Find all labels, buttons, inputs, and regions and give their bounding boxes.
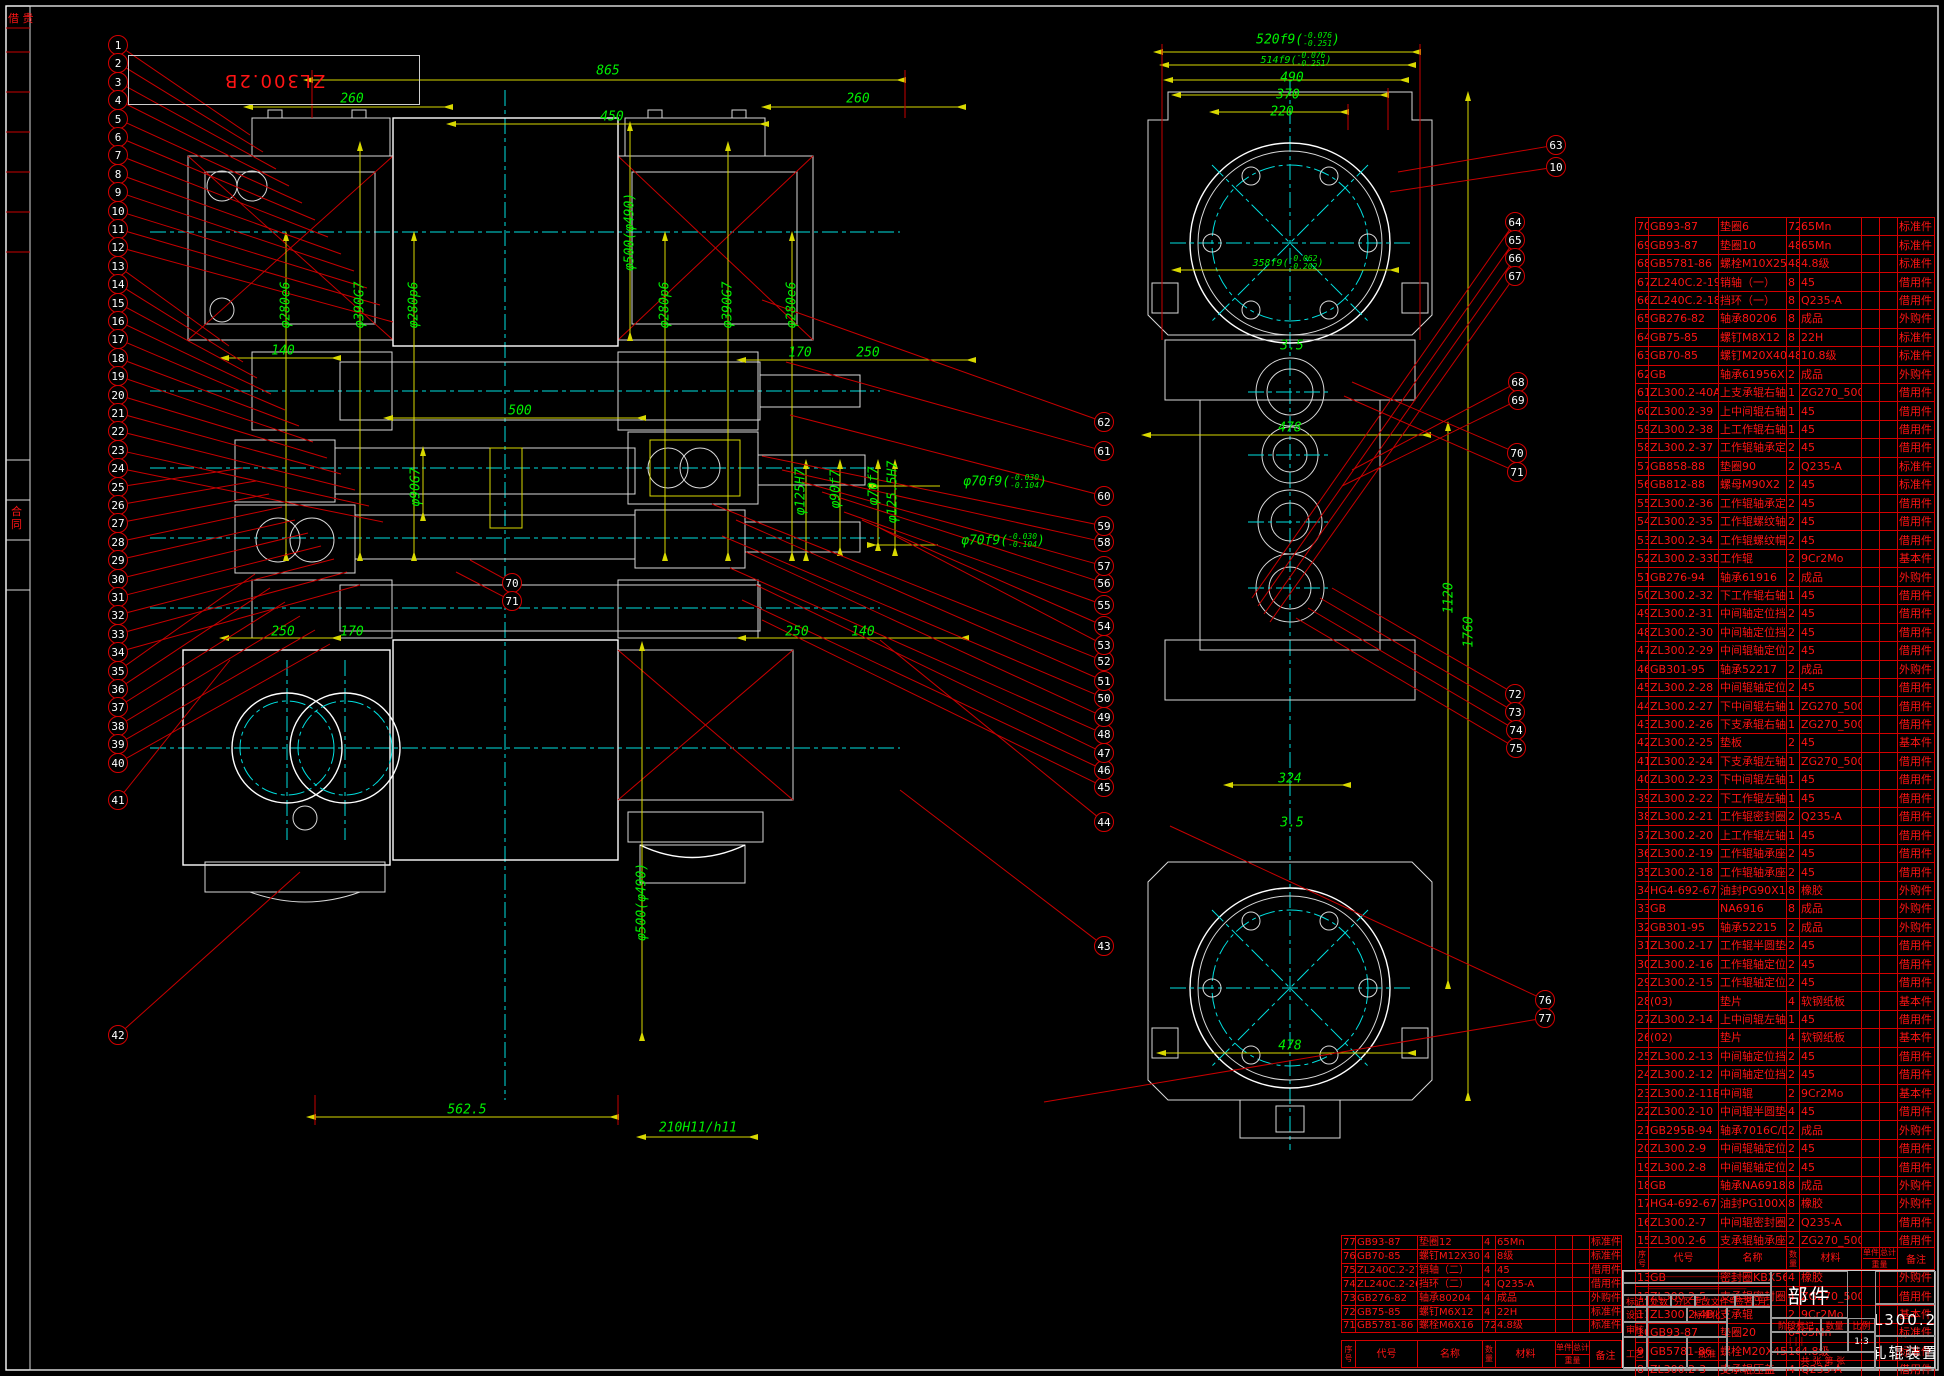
balloon-9[interactable]: 9 (108, 182, 128, 202)
bom-cell (1862, 771, 1880, 788)
bom-cell (1862, 384, 1880, 401)
bom-cell: 标准件 (1590, 1320, 1621, 1332)
balloon-36[interactable]: 36 (108, 679, 128, 699)
side-view[interactable] (1148, 80, 1432, 1150)
tb-scale-value: 1:3 (1848, 1332, 1875, 1352)
dimension-label-10[interactable]: φ280e6 (785, 282, 800, 329)
bom-cell (1862, 716, 1880, 733)
bom-cell: GB75-85 (1649, 329, 1719, 346)
bom-cell: 轴承NA6918 (1719, 1177, 1787, 1194)
balloon-50[interactable]: 50 (1094, 688, 1114, 708)
bom-cell: 69 (1636, 236, 1649, 253)
balloon-61[interactable]: 61 (1094, 441, 1114, 461)
bom-row-56: 56GB812-88螺母M90X2245标准件 (1636, 475, 1934, 493)
dimension-label-39[interactable]: 324 (1278, 772, 1301, 787)
bom-cell (1880, 366, 1898, 383)
bom-cell: 72 (1342, 1306, 1356, 1319)
bom-cell: 外购件 (1898, 1177, 1934, 1194)
bom-cell (1880, 255, 1898, 272)
bom-cell: 工作辊螺纹轴套 (1719, 513, 1787, 530)
balloon-38[interactable]: 38 (108, 716, 128, 736)
balloon-15[interactable]: 15 (108, 293, 128, 313)
bom-row-75: 75ZL240C.2-27销轴（二）445借用件 (1342, 1263, 1621, 1277)
balloon-48[interactable]: 48 (1094, 724, 1114, 744)
bom-cell: GB295B-94 (1649, 1121, 1719, 1138)
bom-cell: HG4-692-67 (1649, 1195, 1719, 1212)
dimension-label-12[interactable]: 170 (788, 346, 811, 361)
bom-cell: 中间轴定位挡板(二) (1719, 624, 1787, 641)
bom-cell (1880, 1177, 1898, 1194)
bom-cell: 轴承61956X1M/2 (1719, 366, 1787, 383)
bom-cell: 下工作辊左轴承座 (1719, 790, 1787, 807)
bom-cell: 8 (1787, 900, 1800, 917)
bom-row-58: 58ZL300.2-37工作辊轴承定位挡板(二)245借用件 (1636, 438, 1934, 456)
dimension-label-24[interactable]: 250 (785, 625, 808, 640)
dimension-label-30[interactable]: 514f9(-0.076-0.251) (1260, 52, 1331, 68)
dimension-label-19[interactable]: φ125.5H7 (886, 461, 901, 524)
bom-cell: 软钢纸板 (1800, 992, 1862, 1009)
balloon-41[interactable]: 41 (108, 790, 128, 810)
bom-cell: ZL300.2-34 (1649, 531, 1719, 548)
bom-cell: ZL240C.2-19 (1649, 273, 1719, 290)
bom-table-small[interactable]: 77GB93-87垫圈12465Mn标准件76GB70-85螺钉M12X3048… (1341, 1235, 1622, 1333)
balloon-7[interactable]: 7 (108, 145, 128, 165)
balloon-32[interactable]: 32 (108, 605, 128, 625)
bom-cell: 2 (1787, 1121, 1800, 1138)
bom-cell: 销轴（二） (1418, 1264, 1483, 1277)
dimension-label-4[interactable]: φ280e6 (279, 282, 294, 329)
bom-cell: 65Mn (1496, 1236, 1556, 1249)
dimension-label-22[interactable]: 250 (271, 625, 294, 640)
bom-cell: 成品 (1800, 661, 1862, 678)
bom-cell: 借用件 (1898, 384, 1934, 401)
dimension-label-20[interactable]: φ70f9(-0.030-0.104) (963, 474, 1047, 490)
bom-cell: 55 (1636, 495, 1649, 512)
bom-cell: 借用件 (1898, 1011, 1934, 1028)
balloon-66[interactable]: 66 (1505, 248, 1525, 268)
dimension-lines (228, 44, 1468, 1137)
balloon-26[interactable]: 26 (108, 495, 128, 515)
dimension-label-16[interactable]: φ125H7 (794, 469, 809, 516)
balloon-77[interactable]: 77 (1535, 1008, 1555, 1028)
bom-cell: ZL300.2-25 (1649, 734, 1719, 751)
bom-cell: 2 (1787, 366, 1800, 383)
balloon-40[interactable]: 40 (108, 753, 128, 773)
bom-cell (1862, 550, 1880, 567)
balloon-12[interactable]: 12 (108, 237, 128, 257)
tb-check-label: 审核 (1623, 1322, 1647, 1337)
bom-cell: 外购件 (1898, 568, 1934, 585)
dimension-label-41[interactable]: 478 (1278, 1039, 1301, 1054)
bom-cell: 借用件 (1898, 937, 1934, 954)
bom-cell: 45 (1800, 1066, 1862, 1083)
bom-cell (1880, 476, 1898, 493)
bom-cell (1880, 513, 1898, 530)
bom-cell (1880, 1011, 1898, 1028)
bom-cell: 借用件 (1898, 826, 1934, 843)
bom-cell: 借用件 (1898, 863, 1934, 880)
bom-cell: 下中间辊左轴承座 (1719, 771, 1787, 788)
bom-cell: 上中间辊右轴承座 (1719, 402, 1787, 419)
bom-cell (1880, 1066, 1898, 1083)
bom-cell: 2 (1787, 974, 1800, 991)
bom-cell: 2 (1787, 661, 1800, 678)
bom-cell: Q235-A (1800, 458, 1862, 475)
bom-cell: 45 (1496, 1264, 1556, 1277)
balloon-34[interactable]: 34 (108, 642, 128, 662)
bom-cell: 54 (1636, 513, 1649, 530)
bom-cell (1880, 292, 1898, 309)
bom-cell: 2 (1787, 1140, 1800, 1157)
bom-cell (1880, 1214, 1898, 1231)
balloon-20[interactable]: 20 (108, 385, 128, 405)
bom-row-39: 39ZL300.2-22下工作辊左轴承座145借用件 (1636, 789, 1934, 807)
dimension-label-25[interactable]: 140 (851, 625, 874, 640)
bom-cell: 45 (1800, 476, 1862, 493)
bom-row-16: 16ZL300.2-7中间辊密封圈压盖2Q235-A借用件 (1636, 1213, 1934, 1231)
dimension-label-29[interactable]: 520f9(-0.076-0.251) (1256, 32, 1340, 48)
balloon-37[interactable]: 37 (108, 697, 128, 717)
bom-cell (1862, 1214, 1880, 1231)
bom-cell: ZL300.2-15 (1649, 974, 1719, 991)
balloon-21[interactable]: 21 (108, 403, 128, 423)
balloon-42[interactable]: 42 (108, 1025, 128, 1045)
bom-cell: 22 (1636, 1103, 1649, 1120)
dimension-label-28[interactable]: 210H11/h11 (659, 1121, 737, 1136)
bom-cell: 借用件 (1898, 495, 1934, 512)
dimension-label-3[interactable]: 260 (846, 92, 869, 107)
bom-row-26: 26(02)垫片4软钢纸板基本件 (1636, 1028, 1934, 1046)
bom-cell: 45 (1800, 845, 1862, 862)
bom-cell (1556, 1264, 1573, 1277)
balloon-4[interactable]: 4 (108, 90, 128, 110)
bom-cell (1862, 402, 1880, 419)
balloon-31[interactable]: 31 (108, 587, 128, 607)
bom-header-序号: 序号 (1636, 1248, 1649, 1269)
dimension-label-6[interactable]: φ280p6 (407, 282, 422, 329)
balloon-16[interactable]: 16 (108, 311, 128, 331)
dimension-label-18[interactable]: φ70f7 (867, 466, 882, 505)
bom-cell: 65Mn (1800, 218, 1862, 235)
bom-row-36: 36ZL300.2-19工作辊轴承座外环245借用件 (1636, 844, 1934, 862)
balloon-71[interactable]: 71 (1507, 462, 1527, 482)
balloon-53[interactable]: 53 (1094, 635, 1114, 655)
balloon-69[interactable]: 69 (1508, 390, 1528, 410)
bom-cell: GB301-95 (1649, 919, 1719, 936)
balloon-68[interactable]: 68 (1508, 372, 1528, 392)
bom-cell: GB93-87 (1649, 218, 1719, 235)
balloon-17[interactable]: 17 (108, 329, 128, 349)
bom-cell (1880, 679, 1898, 696)
balloon-18[interactable]: 18 (108, 348, 128, 368)
bom-cell: 74 (1342, 1278, 1356, 1291)
balloon-10[interactable]: 10 (1546, 157, 1566, 177)
bom-cell: 螺栓M10X25 (1719, 255, 1787, 272)
balloon-13[interactable]: 13 (108, 256, 128, 276)
bom-cell: 借用件 (1898, 292, 1934, 309)
dimension-label-37[interactable]: 1120 (1442, 582, 1457, 613)
dimension-label-32[interactable]: 370 (1276, 88, 1299, 103)
bom-cell (1862, 366, 1880, 383)
bom-header-代号: 代号 (1649, 1248, 1719, 1269)
bom-cell: 借用件 (1898, 790, 1934, 807)
dimension-label-13[interactable]: 250 (856, 346, 879, 361)
bom-cell (1880, 587, 1898, 604)
bom-cell: 2 (1787, 1048, 1800, 1065)
tb-qty-value (1821, 1332, 1848, 1352)
bom-header-weight: 单件总计重量 (1556, 1341, 1590, 1367)
bom-cell: 标准件 (1898, 255, 1934, 272)
bom-cell: 借用件 (1898, 1140, 1934, 1157)
bom-cell: 外购件 (1898, 1195, 1934, 1212)
bom-cell: 借用件 (1898, 716, 1934, 733)
bom-cell (1862, 1085, 1880, 1102)
bom-row-50: 50ZL300.2-32下工作辊右轴承座145借用件 (1636, 586, 1934, 604)
bom-cell: 轴承52217 (1719, 661, 1787, 678)
balloon-74[interactable]: 74 (1506, 720, 1526, 740)
balloon-19[interactable]: 19 (108, 366, 128, 386)
balloon-70[interactable]: 70 (502, 573, 522, 593)
bom-cell: 34 (1636, 882, 1649, 899)
bom-header-数量: 数量 (1787, 1248, 1800, 1269)
balloon-5[interactable]: 5 (108, 109, 128, 129)
bom-cell: 垫圈10 (1719, 236, 1787, 253)
bom-cell: ZL300.2-24 (1649, 753, 1719, 770)
bom-row-67: 67ZL240C.2-19销轴（一）845借用件 (1636, 272, 1934, 290)
balloon-33[interactable]: 33 (108, 624, 128, 644)
balloon-49[interactable]: 49 (1094, 707, 1114, 727)
dimension-label-38[interactable]: 1760 (1462, 616, 1477, 647)
balloon-6[interactable]: 6 (108, 127, 128, 147)
bom-cell (1880, 402, 1898, 419)
bom-cell: 成品 (1496, 1292, 1556, 1305)
balloon-71[interactable]: 71 (502, 591, 522, 611)
bom-cell (1862, 1048, 1880, 1065)
bom-cell: 8 (1787, 882, 1800, 899)
bom-cell: ZL300.2-19 (1649, 845, 1719, 862)
balloon-46[interactable]: 46 (1094, 760, 1114, 780)
dimension-label-23[interactable]: 170 (340, 625, 363, 640)
bom-cell: 18 (1636, 1177, 1649, 1194)
dimension-label-35[interactable]: 3.5 (1280, 339, 1303, 354)
bom-table-main[interactable]: 70GB93-87垫圈67265Mn标准件69GB93-87垫圈104865Mn… (1635, 217, 1935, 1376)
bom-cell (1862, 347, 1880, 364)
bom-cell (1862, 568, 1880, 585)
bom-cell: ZL300.2-14 (1649, 1011, 1719, 1028)
bom-cell: ZL240C.2-27 (1356, 1264, 1418, 1277)
dimension-label-1[interactable]: 260 (340, 92, 363, 107)
bom-cell: 45 (1800, 439, 1862, 456)
bom-cell: ZL300.2-21 (1649, 808, 1719, 825)
bom-cell: 1 (1787, 771, 1800, 788)
bom-cell: 工作辊 (1719, 550, 1787, 567)
balloon-57[interactable]: 57 (1094, 556, 1114, 576)
bom-cell: 成品 (1800, 568, 1862, 585)
bom-cell: 45 (1800, 605, 1862, 622)
dimension-label-11[interactable]: 140 (271, 344, 294, 359)
bom-row-18: 18GB轴承NA69188成品外购件 (1636, 1176, 1934, 1194)
bom-cell (1880, 697, 1898, 714)
balloon-11[interactable]: 11 (108, 219, 128, 239)
balloon-39[interactable]: 39 (108, 734, 128, 754)
dimension-label-36[interactable]: 478 (1278, 421, 1301, 436)
bom-cell: 64 (1636, 329, 1649, 346)
bom-cell: 39 (1636, 790, 1649, 807)
bom-cell: ZL240C.2-18 (1649, 292, 1719, 309)
bom-cell: 借用件 (1898, 402, 1934, 419)
balloon-10[interactable]: 10 (108, 201, 128, 221)
bom-cell: ZG270_500 (1800, 753, 1862, 770)
bom-cell: GB (1649, 1177, 1719, 1194)
bom-cell (1862, 476, 1880, 493)
bom-cell: ZL300.2-39 (1649, 402, 1719, 419)
bom-cell: 借用件 (1590, 1278, 1621, 1291)
bom-cell: 45 (1800, 513, 1862, 530)
bom-cell: 59 (1636, 421, 1649, 438)
balloon-44[interactable]: 44 (1094, 812, 1114, 832)
balloon-47[interactable]: 47 (1094, 743, 1114, 763)
tb-qty-label: 数量 (1821, 1318, 1848, 1332)
dimension-label-40[interactable]: 3.5 (1280, 816, 1303, 831)
balloon-67[interactable]: 67 (1505, 266, 1525, 286)
balloon-28[interactable]: 28 (108, 532, 128, 552)
bom-cell: GB301-95 (1649, 661, 1719, 678)
bom-table-main-header: 序号代号名称数量材料单件总计重量备注 (1635, 1247, 1935, 1270)
balloon-35[interactable]: 35 (108, 661, 128, 681)
bom-cell: 工作辊轴定位挡板(一) (1719, 974, 1787, 991)
balloon-29[interactable]: 29 (108, 550, 128, 570)
bom-cell (1880, 568, 1898, 585)
bom-cell: 42 (1636, 734, 1649, 751)
dimension-label-26[interactable]: φ500(φ490) (635, 863, 650, 941)
bom-cell: 借用件 (1898, 1103, 1934, 1120)
balloon-25[interactable]: 25 (108, 477, 128, 497)
dimension-label-2[interactable]: 450 (600, 110, 623, 125)
bom-cell: 基本件 (1898, 1085, 1934, 1102)
tb-changedoc-label: 更改文件号 (1695, 1295, 1735, 1307)
bom-header-备注: 备注 (1590, 1341, 1621, 1367)
dimension-label-34[interactable]: 358f9(-0.062-0.202) (1252, 255, 1323, 271)
balloon-30[interactable]: 30 (108, 569, 128, 589)
dimension-label-15[interactable]: φ90G7 (409, 467, 424, 506)
balloon-76[interactable]: 76 (1535, 990, 1555, 1010)
bom-cell: 上工作辊右轴承座 (1719, 421, 1787, 438)
dimension-label-31[interactable]: 490 (1280, 71, 1303, 86)
balloon-43[interactable]: 43 (1094, 936, 1114, 956)
bom-cell: GB70-85 (1649, 347, 1719, 364)
balloon-64[interactable]: 64 (1505, 212, 1525, 232)
bom-cell: ZL300.2-35 (1649, 513, 1719, 530)
bom-cell: 22H (1496, 1306, 1556, 1319)
bom-cell (1862, 458, 1880, 475)
bom-cell: 1 (1787, 826, 1800, 843)
balloon-63[interactable]: 63 (1546, 135, 1566, 155)
tb-craft-sign (1647, 1337, 1687, 1369)
bom-cell: 8 (1787, 310, 1800, 327)
balloon-75[interactable]: 75 (1506, 738, 1526, 758)
bom-cell: 1 (1787, 421, 1800, 438)
dimension-label-27[interactable]: 562.5 (447, 1103, 486, 1118)
bom-cell (1573, 1320, 1590, 1332)
balloon-62[interactable]: 62 (1094, 412, 1114, 432)
dimension-label-8[interactable]: φ280p6 (658, 282, 673, 329)
bom-cell: 46 (1636, 661, 1649, 678)
bom-cell: 45 (1800, 1103, 1862, 1120)
bom-cell: 基本件 (1898, 550, 1934, 567)
bom-cell: 上中间辊左轴承座 (1719, 1011, 1787, 1028)
balloon-55[interactable]: 55 (1094, 595, 1114, 615)
balloon-54[interactable]: 54 (1094, 616, 1114, 636)
bom-row-60: 60ZL300.2-39上中间辊右轴承座145借用件 (1636, 401, 1934, 419)
bom-cell: 37 (1636, 826, 1649, 843)
bom-cell (1556, 1278, 1573, 1291)
dimension-label-17[interactable]: φ90f7 (829, 469, 844, 508)
bom-cell (1880, 845, 1898, 862)
dimension-label-21[interactable]: φ70f9(-0.030-0.104) (961, 533, 1045, 549)
balloon-24[interactable]: 24 (108, 458, 128, 478)
bom-cell: 工作辊轴承座内环 (1719, 863, 1787, 880)
balloon-27[interactable]: 27 (108, 513, 128, 533)
dimension-label-7[interactable]: φ500(φ490) (623, 193, 638, 271)
balloon-73[interactable]: 73 (1505, 702, 1525, 722)
bom-cell: 48 (1636, 624, 1649, 641)
bom-cell: 成品 (1800, 1177, 1862, 1194)
dimension-label-14[interactable]: 500 (508, 404, 531, 419)
bom-cell: 标准件 (1898, 347, 1934, 364)
bom-cell: 借用件 (1590, 1264, 1621, 1277)
bom-cell: 2 (1787, 439, 1800, 456)
dimension-label-33[interactable]: 220 (1270, 105, 1293, 120)
bom-cell: ZL300.2-29 (1649, 642, 1719, 659)
bom-cell: 下支承辊左轴承座 (1719, 753, 1787, 770)
balloon-14[interactable]: 14 (108, 274, 128, 294)
bom-cell (1862, 937, 1880, 954)
bom-cell: ZL300.2-28 (1649, 679, 1719, 696)
balloon-60[interactable]: 60 (1094, 486, 1114, 506)
dimension-label-9[interactable]: φ390G7 (721, 282, 736, 329)
bom-cell (1880, 734, 1898, 751)
balloon-51[interactable]: 51 (1094, 671, 1114, 691)
balloon-70[interactable]: 70 (1507, 443, 1527, 463)
dimension-label-0[interactable]: 865 (596, 64, 619, 79)
bom-row-32: 32GB301-95轴承522152成品外购件 (1636, 918, 1934, 936)
balloon-22[interactable]: 22 (108, 421, 128, 441)
balloon-65[interactable]: 65 (1505, 230, 1525, 250)
balloon-1[interactable]: 1 (108, 35, 128, 55)
bom-cell: 48 (1787, 255, 1800, 272)
bom-cell (1880, 642, 1898, 659)
bom-cell (1573, 1278, 1590, 1291)
balloon-45[interactable]: 45 (1094, 777, 1114, 797)
bom-cell: 4 (1787, 1029, 1800, 1046)
bom-row-42: 42ZL300.2-25垫板245基本件 (1636, 733, 1934, 751)
cad-drawing-canvas[interactable]: { "frame": { "corner_code": "ZL300.2B", … (0, 0, 1944, 1376)
dimension-label-5[interactable]: φ390G7 (353, 282, 368, 329)
balloon-23[interactable]: 23 (108, 440, 128, 460)
balloon-72[interactable]: 72 (1505, 684, 1525, 704)
balloon-56[interactable]: 56 (1094, 573, 1114, 593)
bom-cell: 45 (1800, 273, 1862, 290)
bom-cell: 工作辊半圆垫套 (1719, 937, 1787, 954)
balloon-8[interactable]: 8 (108, 164, 128, 184)
bom-cell (1862, 531, 1880, 548)
balloon-2[interactable]: 2 (108, 53, 128, 73)
bom-cell: 1 (1787, 384, 1800, 401)
bom-cell (1880, 974, 1898, 991)
balloon-59[interactable]: 59 (1094, 516, 1114, 536)
balloon-3[interactable]: 3 (108, 72, 128, 92)
bom-cell: 外购件 (1898, 919, 1934, 936)
